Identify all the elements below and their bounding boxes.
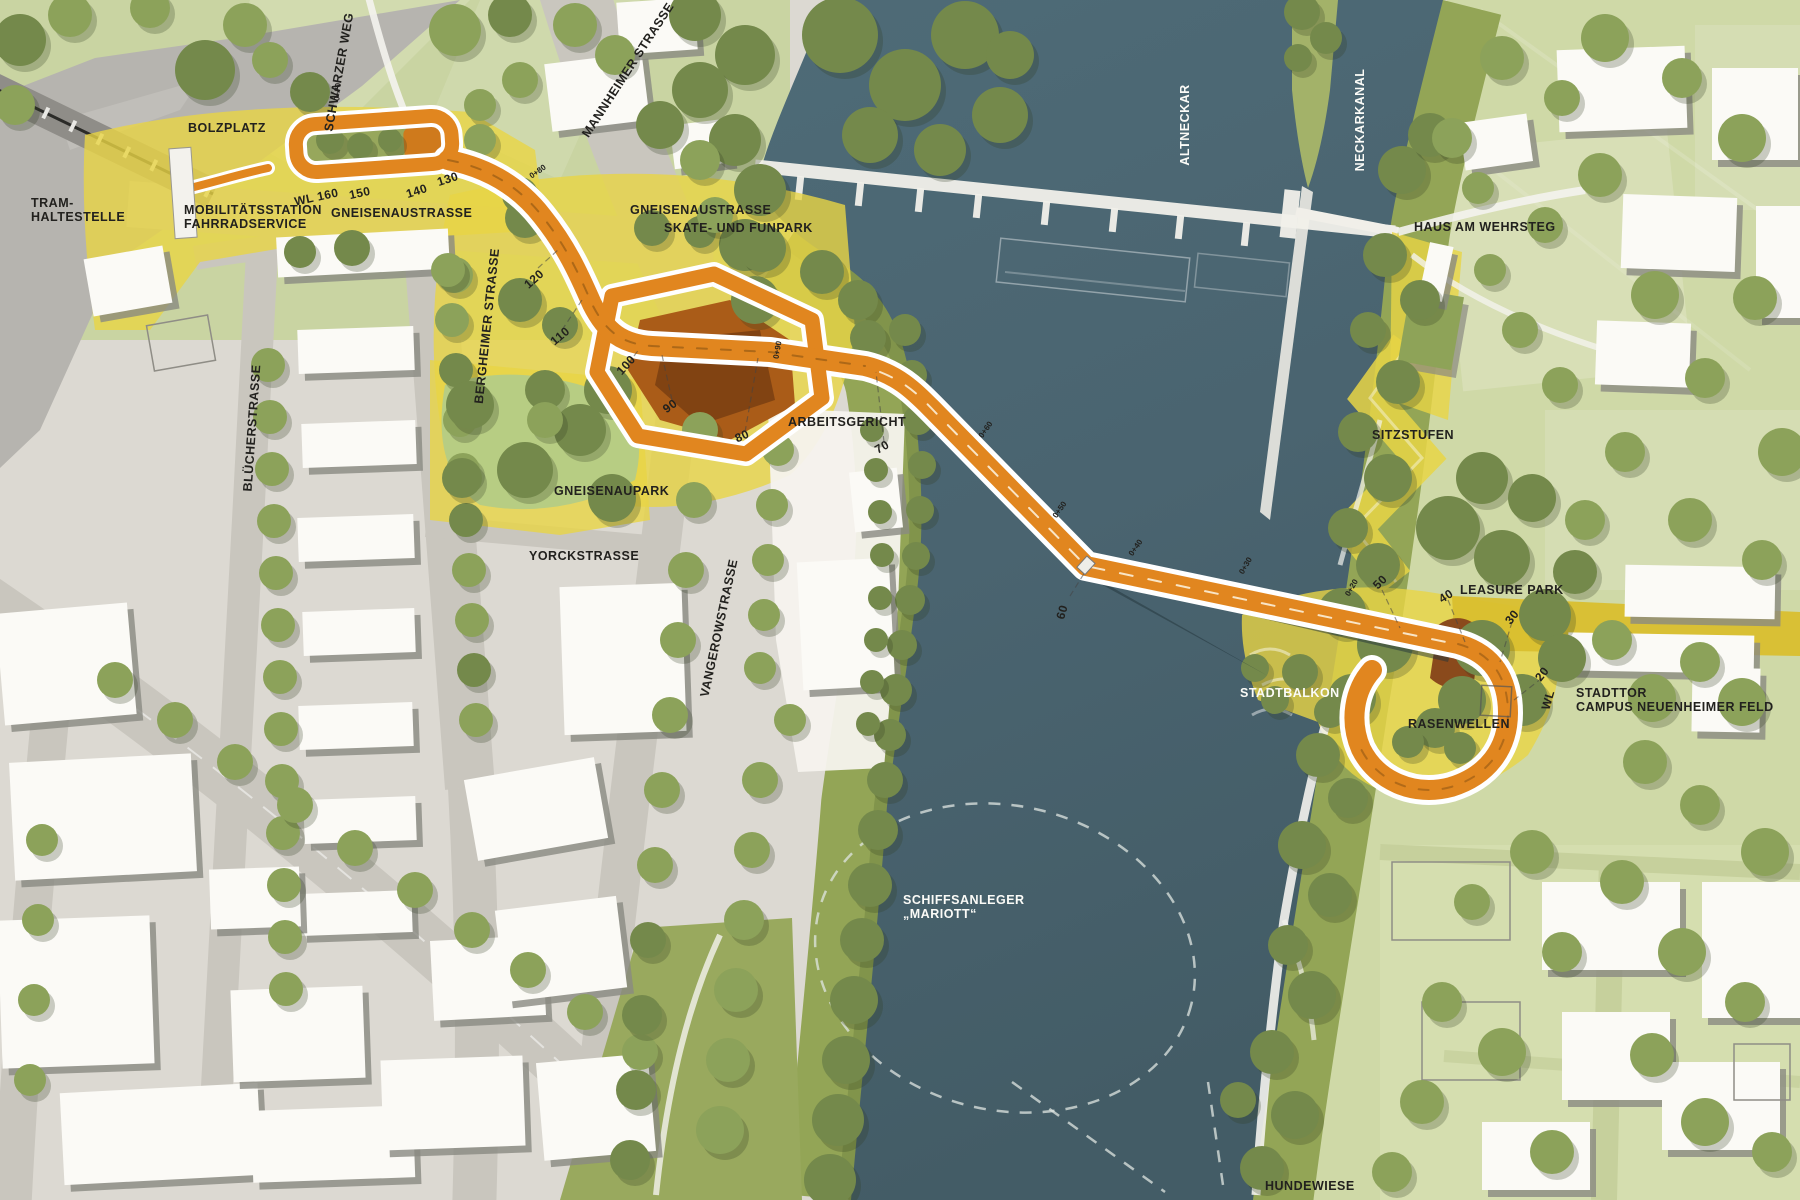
map-canvas xyxy=(0,0,1800,1200)
site-plan: TRAM-HALTESTELLE BOLZPLATZ MOBILITÄTSSTA… xyxy=(0,0,1800,1200)
